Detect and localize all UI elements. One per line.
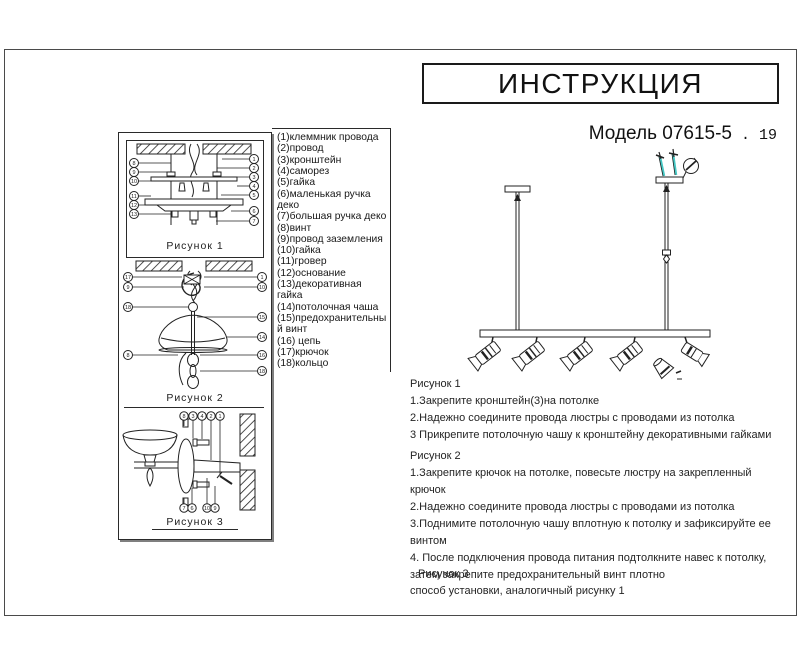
svg-text:10: 10 (131, 179, 137, 185)
figure1-label: Рисунок 1 (127, 240, 263, 252)
part-item: (13)декоративная гайка (277, 279, 389, 302)
figure3-label: Рисунок 3 (119, 516, 271, 528)
svg-text:14: 14 (259, 335, 265, 341)
track-bar (480, 330, 710, 337)
svg-text:12: 12 (131, 203, 137, 209)
part-item: (12)основание (277, 268, 389, 279)
ceiling-hatch (136, 261, 252, 271)
title-box: ИНСТРУКЦИЯ (422, 63, 779, 104)
instruction-line: 3 Прикрепите потолочную чашу к кронштейн… (410, 427, 782, 444)
part-item: (6)маленькая ручка деко (277, 189, 389, 212)
spotlight (610, 337, 644, 371)
svg-text:11: 11 (131, 194, 137, 200)
model-suffix: . 19 (732, 127, 777, 144)
instructions-heading: Рисунок 3 (410, 566, 782, 583)
svg-text:9: 9 (132, 170, 135, 176)
model-line: Модель 07615-5 . 19 (500, 123, 777, 145)
model-label: Модель 07615-5 (589, 123, 732, 144)
svg-text:13: 13 (131, 212, 137, 218)
instruction-line: 1.Закрепите кронштейн(3)на потолке (410, 393, 782, 410)
instructions-figure3: Рисунок 3 способ установки, аналогичный … (410, 566, 782, 600)
ceiling-cup (159, 315, 227, 352)
svg-text:1: 1 (252, 157, 255, 163)
detail-magnifier (683, 158, 699, 178)
svg-text:15: 15 (259, 315, 265, 321)
part-item: (11)гровер (277, 256, 389, 267)
mounting-screws (656, 149, 678, 176)
spotlight (512, 337, 546, 371)
svg-text:9: 9 (126, 285, 129, 291)
mount-plate (178, 439, 194, 493)
svg-text:8: 8 (182, 414, 185, 420)
svg-text:18: 18 (259, 369, 265, 375)
ceiling-base (145, 199, 243, 224)
figure2-diagram: 17 9 18 8 1 10 15 14 16 18 (120, 259, 270, 391)
sconce-shade (123, 430, 177, 486)
part-item: (5)гайка (277, 177, 389, 188)
terminal-block (184, 275, 200, 284)
svg-text:5: 5 (252, 193, 255, 199)
part-item: (9)провод заземления (277, 234, 389, 245)
instruction-line: способ установки, аналогичный рисунку 1 (410, 583, 782, 600)
svg-text:6: 6 (252, 209, 255, 215)
instruction-line: 1.Закрепите крючок на потолке, повесьте … (410, 465, 782, 499)
chain-links (179, 353, 198, 389)
sconce-arm (134, 462, 178, 468)
part-item: (2)провод (277, 143, 389, 154)
parts-list: (1)клеммник провода (2)провод (3)кронште… (272, 128, 391, 372)
part-item: (14)потолочная чаша (277, 302, 389, 313)
right-suspension-rod (656, 177, 683, 330)
svg-text:10: 10 (259, 285, 265, 291)
figure2-label: Рисунок 2 (119, 392, 271, 404)
figure1-box: 8 9 10 11 12 13 1 2 3 4 5 6 7 Рисунок 1 (126, 140, 264, 258)
svg-text:16: 16 (259, 353, 265, 359)
part-item: (7)большая ручка деко (277, 211, 389, 222)
svg-text:9: 9 (213, 506, 216, 512)
part-item: (17)крючок (277, 347, 389, 358)
part-item: (4)саморез (277, 166, 389, 177)
part-item: (3)кронштейн (277, 155, 389, 166)
wall-bracket (194, 460, 240, 472)
part-item: (16) цепь (277, 336, 389, 347)
svg-text:2: 2 (209, 414, 212, 420)
anchor-screw (217, 472, 232, 484)
svg-text:3: 3 (191, 414, 194, 420)
figure-divider (124, 407, 264, 408)
part-item: (1)клеммник провода (277, 132, 389, 143)
page-title: ИНСТРУКЦИЯ (498, 68, 703, 100)
spotlight (468, 337, 502, 371)
instruction-line: 3.Поднимите потолочную чашу вплотную к п… (410, 516, 782, 550)
ring-ball (189, 303, 198, 312)
svg-text:6: 6 (190, 506, 193, 512)
part-item: (8)винт (277, 223, 389, 234)
instruction-sheet: { "page": { "title": "ИНСТРУКЦИЯ", "mode… (0, 0, 800, 666)
part-item: (18)кольцо (277, 358, 389, 369)
spotlight (560, 337, 594, 371)
chandelier-drawing (435, 145, 800, 385)
svg-text:7: 7 (182, 506, 185, 512)
wires (189, 144, 199, 197)
left-suspension-rod (505, 186, 530, 330)
svg-text:10: 10 (204, 506, 210, 512)
svg-text:18: 18 (125, 305, 131, 311)
instructions-heading: Рисунок 1 (410, 376, 782, 393)
instructions-heading: Рисунок 2 (410, 448, 782, 465)
figure3-diagram: 8 3 4 2 1 7 6 10 9 (120, 410, 270, 514)
svg-text:4: 4 (252, 184, 255, 190)
figure1-diagram: 8 9 10 11 12 13 1 2 3 4 5 6 7 (127, 141, 261, 237)
svg-text:8: 8 (126, 353, 129, 359)
svg-text:1: 1 (260, 275, 263, 281)
instructions-figure2: Рисунок 2 1.Закрепите крючок на потолке,… (410, 448, 782, 584)
svg-text:4: 4 (200, 414, 203, 420)
figures-panel: 8 9 10 11 12 13 1 2 3 4 5 6 7 Рисунок 1 (118, 132, 272, 540)
instructions-figure1: Рисунок 1 1.Закрепите кронштейн(3)на пот… (410, 376, 782, 444)
wall-hatch (240, 414, 255, 510)
svg-text:7: 7 (252, 219, 255, 225)
svg-text:17: 17 (125, 275, 131, 281)
instruction-line: 2.Надежно соедините провода люстры с про… (410, 410, 782, 427)
instruction-line: 2.Надежно соедините провода люстры с про… (410, 499, 782, 516)
svg-text:3: 3 (252, 175, 255, 181)
svg-text:2: 2 (252, 166, 255, 172)
ceiling-hatch (137, 144, 251, 154)
spotlight-holder (680, 337, 709, 366)
svg-text:8: 8 (132, 161, 135, 167)
svg-text:1: 1 (218, 414, 221, 420)
bracket-plate (151, 172, 237, 191)
part-item: (15)предохранительный винт (277, 313, 389, 336)
part-item: (10)гайка (277, 245, 389, 256)
